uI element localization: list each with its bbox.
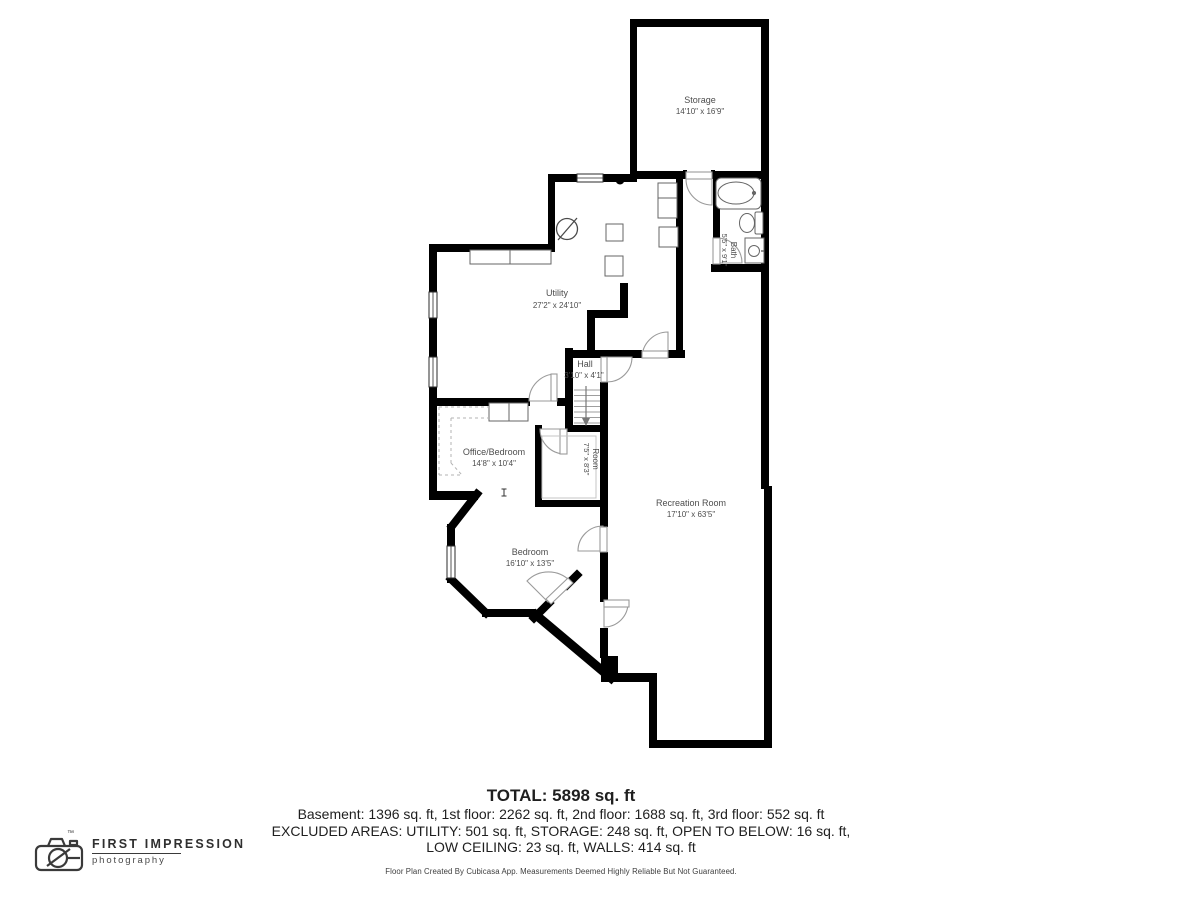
opening-marker-icon bbox=[502, 489, 507, 496]
wall-utility-left-upper bbox=[548, 174, 555, 252]
photographer-logo: ™ FIRST IMPRESSION photography bbox=[34, 828, 264, 888]
label-storage: Storage 14'10" x 16'9" bbox=[676, 95, 724, 116]
wall-bay-diag-lower bbox=[451, 579, 486, 613]
wall-rec-top-b bbox=[668, 350, 685, 358]
floorplan-drawing: Storage 14'10" x 16'9" Utility 27'2" x 2… bbox=[0, 0, 1200, 900]
wall-rec-left-lower bbox=[649, 681, 657, 748]
room-dims: 7'5" x 8'3" bbox=[582, 443, 591, 476]
room-dims: 16'10" x 13'5" bbox=[506, 559, 554, 568]
door-leaf-bath bbox=[713, 238, 720, 264]
wall-rec-left-c bbox=[600, 628, 608, 658]
bath-sink bbox=[749, 246, 760, 257]
wall-rec-left-a bbox=[600, 382, 608, 527]
room-name: Office/Bedroom bbox=[463, 447, 525, 457]
door-arc-storage bbox=[686, 179, 712, 205]
logo-divider bbox=[92, 853, 181, 855]
room-name: Bedroom bbox=[512, 547, 549, 557]
room-name: Storage bbox=[684, 95, 716, 105]
stairs-arrow-icon bbox=[582, 418, 590, 426]
wall-storage-top bbox=[630, 19, 769, 27]
room-dims: 5'5" x 9'1" bbox=[720, 234, 729, 267]
column-marker bbox=[616, 176, 625, 185]
door-leaf-room bbox=[560, 429, 567, 454]
wall-left-a bbox=[429, 244, 437, 292]
room-dims: 3'10" x 4'1" bbox=[564, 371, 604, 380]
label-recreation: Recreation Room 17'10" x 63'5" bbox=[656, 498, 726, 519]
door-leaf-utility bbox=[551, 374, 557, 401]
door-leaf-utility-rec bbox=[642, 351, 668, 358]
toilet-bowl bbox=[740, 214, 755, 233]
diagonal-walls bbox=[451, 494, 611, 678]
room-dims: 17'10" x 63'5" bbox=[667, 510, 715, 519]
door-leaf-bedroom bbox=[600, 527, 607, 552]
label-bedroom: Bedroom 16'10" x 13'5" bbox=[506, 547, 554, 568]
room-name: Bath bbox=[729, 242, 738, 258]
room-name: Hall bbox=[577, 359, 593, 369]
stairs bbox=[574, 386, 600, 426]
label-utility: Utility 27'2" x 24'10" bbox=[533, 288, 581, 310]
toilet-tank bbox=[755, 212, 763, 234]
wall-right-lower bbox=[764, 486, 772, 748]
walls bbox=[429, 19, 772, 748]
wall-utility-bottom-b bbox=[557, 398, 567, 406]
door-arc-bedroom bbox=[578, 526, 603, 551]
wall-left-b bbox=[429, 318, 437, 357]
wall-hall-left bbox=[565, 348, 573, 430]
room-name: Utility bbox=[546, 288, 568, 298]
window bbox=[577, 174, 603, 182]
utility-appliance bbox=[606, 224, 623, 241]
bathtub-basin bbox=[718, 182, 754, 204]
door-leaf-storage bbox=[686, 172, 712, 179]
wall-rec-left-b bbox=[600, 552, 608, 602]
wall-main-diagonal bbox=[536, 615, 611, 678]
door-leaf-rec-lower bbox=[604, 600, 629, 607]
window bbox=[429, 357, 437, 387]
window bbox=[429, 292, 437, 318]
wall-rec-bottom bbox=[649, 740, 771, 748]
room-dims: 14'10" x 16'9" bbox=[676, 107, 724, 116]
room-name: Recreation Room bbox=[656, 498, 726, 508]
room-dims: 14'8" x 10'4" bbox=[472, 459, 516, 468]
total-area: TOTAL: 5898 sq. ft bbox=[0, 786, 1122, 806]
label-office-bedroom: Office/Bedroom 14'8" x 10'4" bbox=[463, 447, 525, 468]
logo-sub-text: photography bbox=[92, 855, 166, 866]
room-name: Room bbox=[591, 448, 600, 470]
floorplan-page: Storage 14'10" x 16'9" Utility 27'2" x 2… bbox=[0, 0, 1200, 900]
utility-shelf bbox=[659, 227, 678, 247]
trademark-symbol: ™ bbox=[67, 830, 74, 837]
label-room: Room 7'5" x 8'3" bbox=[582, 443, 600, 476]
bathtub-drain-icon bbox=[752, 191, 755, 194]
wall-room-bottom bbox=[535, 500, 605, 507]
utility-appliance bbox=[605, 256, 623, 276]
floor-areas: Basement: 1396 sq. ft, 1st floor: 2262 s… bbox=[0, 806, 1122, 823]
utility-shelf bbox=[658, 198, 677, 218]
room-dims: 27'2" x 24'10" bbox=[533, 301, 581, 310]
logo-brand-text: FIRST IMPRESSION bbox=[92, 837, 245, 851]
wall-bath-bottom bbox=[711, 264, 769, 272]
camera-icon bbox=[34, 834, 86, 874]
wall-storage-left bbox=[630, 19, 637, 179]
utility-shelf bbox=[658, 183, 677, 198]
wall-partition-c bbox=[587, 310, 595, 358]
wall-room-top-b bbox=[565, 425, 605, 432]
door-arc-hall bbox=[607, 357, 632, 382]
window bbox=[447, 546, 455, 578]
